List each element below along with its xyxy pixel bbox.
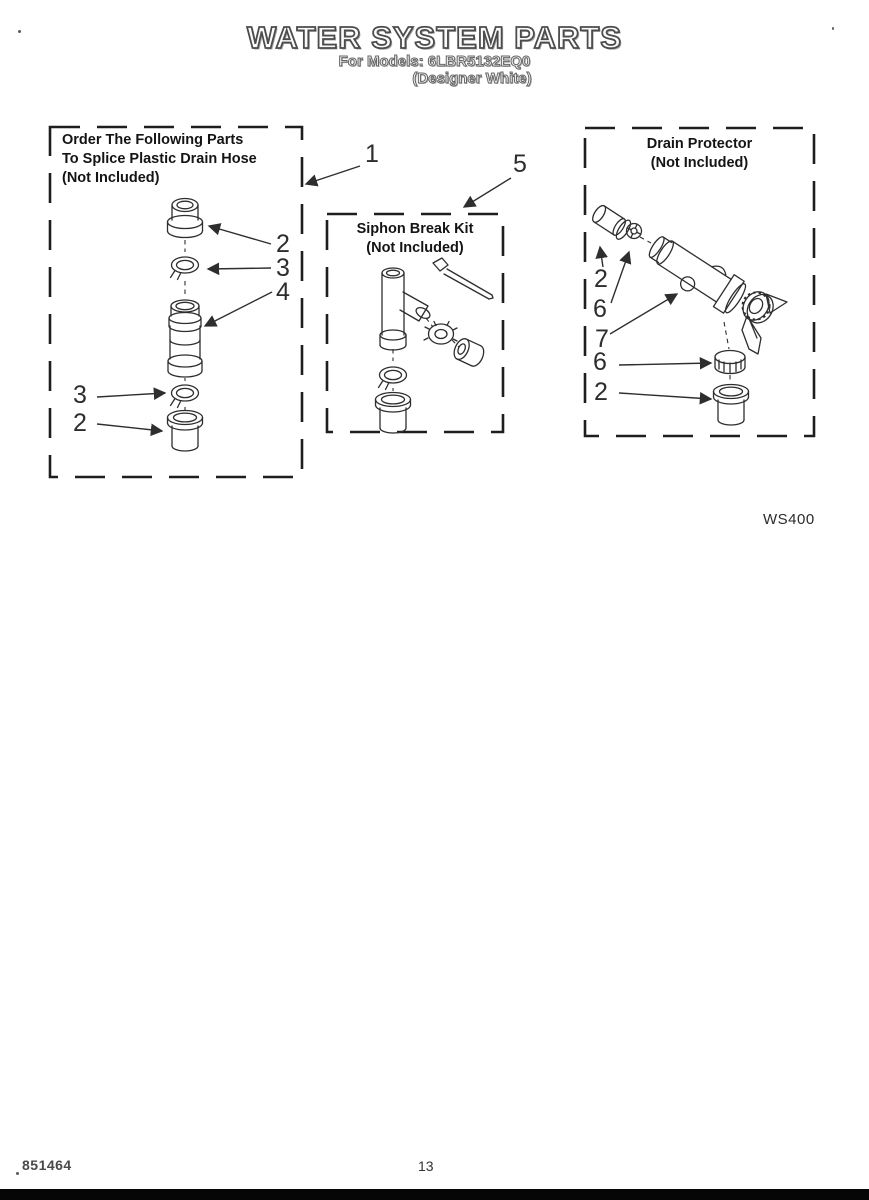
parts-catalog-page: WATER SYSTEM PARTS For Models: 6LBR5132E… bbox=[0, 0, 869, 1200]
callout-drain-top-clamp: 6 bbox=[593, 297, 607, 322]
centerlines bbox=[185, 237, 730, 410]
arrow-drain-top-coupler bbox=[600, 247, 603, 267]
scan-edge-bar bbox=[0, 1189, 869, 1200]
drain-protector-box-title: Drain Protector (Not Included) bbox=[585, 135, 814, 173]
hose-coupler-part bbox=[168, 199, 203, 238]
spring-clamp-part bbox=[171, 257, 199, 280]
callout-item5: 5 bbox=[513, 152, 527, 177]
siphon-kit-title-line2: (Not Included) bbox=[327, 239, 503, 258]
splice-kit-title-line2: To Splice Plastic Drain Hose bbox=[62, 150, 300, 169]
arrow-drain-bottom-clamp bbox=[619, 363, 711, 365]
callout-splice-connector: 4 bbox=[276, 280, 290, 305]
drain-protector-title-line1: Drain Protector bbox=[585, 135, 814, 154]
standpipe-part bbox=[380, 268, 432, 350]
arrow-splice-top-clamp bbox=[208, 268, 271, 269]
splice-kit-title-line3: (Not Included) bbox=[62, 169, 300, 188]
drain-top-coupler-part bbox=[589, 202, 633, 241]
hose-coupler-part bbox=[714, 385, 749, 426]
diagram-code: WS400 bbox=[763, 511, 815, 528]
parts-diagram-canvas bbox=[0, 0, 869, 560]
arrow-splice-connector bbox=[205, 292, 272, 326]
splice-connector-part bbox=[168, 300, 202, 377]
arrow-drain-bottom-coupler bbox=[619, 393, 711, 399]
arrow-splice-top-coupler bbox=[209, 226, 271, 244]
callout-drain-bottom-clamp: 6 bbox=[593, 350, 607, 375]
footer-document-number: 851464 bbox=[22, 1157, 72, 1173]
hose-clamp-part bbox=[715, 351, 745, 374]
spring-clamp-part bbox=[171, 385, 199, 408]
drain-protector-title-line2: (Not Included) bbox=[585, 154, 814, 173]
arrow-drain-body bbox=[610, 294, 677, 334]
arrow-splice-bottom-clamp bbox=[97, 393, 165, 397]
arrow-splice-bottom-coupler bbox=[97, 424, 162, 431]
callout-splice-bottom-clamp: 3 bbox=[73, 383, 87, 408]
callout-item1: 1 bbox=[365, 142, 379, 167]
callout-drain-top-coupler: 2 bbox=[594, 267, 608, 292]
callout-drain-bottom-coupler: 2 bbox=[594, 380, 608, 405]
spring-clamp-part bbox=[379, 367, 407, 390]
arrow-drain-top-clamp bbox=[611, 252, 629, 303]
siphon-kit-title-line1: Siphon Break Kit bbox=[327, 220, 503, 239]
splice-kit-box-title: Order The Following Parts To Splice Plas… bbox=[62, 131, 300, 188]
scan-speck bbox=[16, 1172, 19, 1175]
arrow-item1 bbox=[306, 166, 360, 184]
callout-splice-bottom-coupler: 2 bbox=[73, 411, 87, 436]
arrow-item5 bbox=[464, 178, 511, 207]
hose-coupler-part bbox=[168, 411, 203, 452]
screw-part bbox=[433, 258, 493, 299]
drain-protector-box-outline bbox=[585, 128, 814, 436]
siphon-kit-box-title: Siphon Break Kit (Not Included) bbox=[327, 220, 503, 258]
hose-coupler-part bbox=[376, 393, 411, 434]
splice-kit-title-line1: Order The Following Parts bbox=[62, 131, 300, 150]
footer-page-number: 13 bbox=[418, 1158, 434, 1174]
